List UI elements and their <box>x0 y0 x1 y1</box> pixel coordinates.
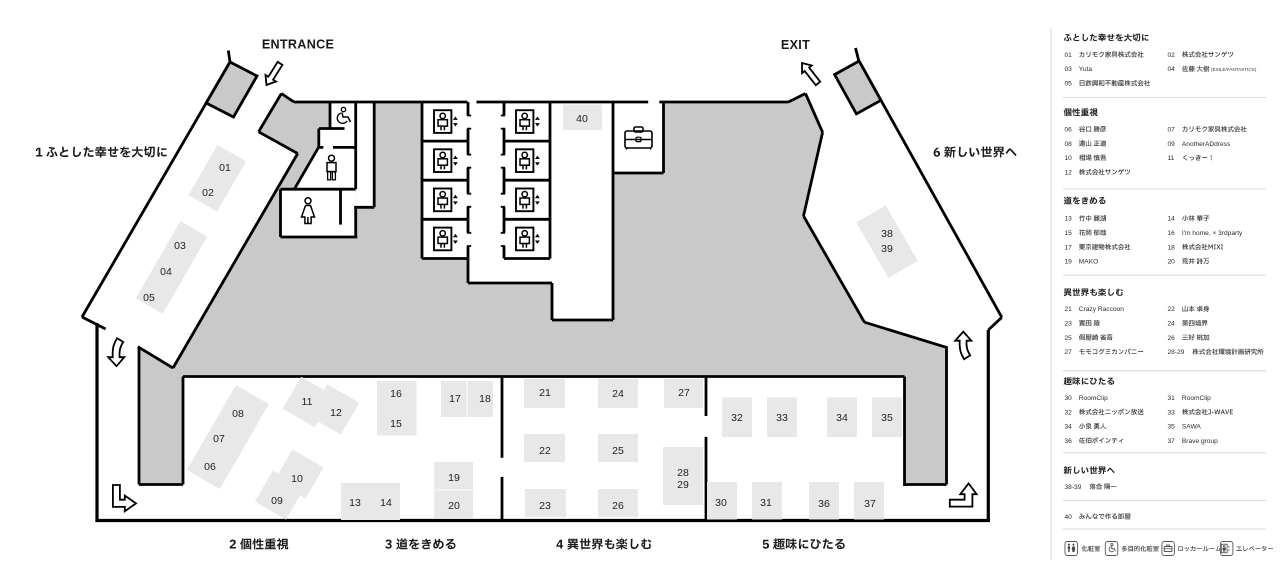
svg-text:(EXILE/FANTASTICS): (EXILE/FANTASTICS) <box>1211 67 1257 72</box>
svg-text:40: 40 <box>576 113 588 125</box>
svg-text:35: 35 <box>881 412 893 424</box>
svg-text:20: 20 <box>1168 259 1176 266</box>
svg-text:37: 37 <box>1168 438 1176 445</box>
svg-text:04: 04 <box>160 266 172 278</box>
svg-text:10: 10 <box>1065 155 1073 162</box>
svg-text:30: 30 <box>715 497 727 509</box>
svg-text:27: 27 <box>1065 349 1073 356</box>
svg-text:Yuta: Yuta <box>1079 66 1093 73</box>
svg-text:EXIT: EXIT <box>781 38 810 52</box>
svg-text:39: 39 <box>881 243 893 255</box>
svg-text:07: 07 <box>213 433 225 445</box>
svg-text:RoomClip: RoomClip <box>1079 395 1108 402</box>
svg-text:32: 32 <box>1065 409 1073 416</box>
svg-text:33: 33 <box>1168 409 1176 416</box>
svg-text:22: 22 <box>1168 306 1176 313</box>
svg-text:22: 22 <box>539 445 551 457</box>
svg-text:37: 37 <box>864 498 876 510</box>
svg-text:26: 26 <box>1168 335 1176 342</box>
svg-text:16: 16 <box>390 388 402 400</box>
svg-text:06: 06 <box>1065 127 1073 134</box>
svg-text:25: 25 <box>612 445 624 457</box>
svg-text:14: 14 <box>380 497 392 509</box>
svg-text:28-29: 28-29 <box>1168 349 1185 356</box>
svg-text:04: 04 <box>1168 66 1176 73</box>
svg-text:36: 36 <box>1065 438 1073 445</box>
svg-text:32: 32 <box>731 412 743 424</box>
svg-text:15: 15 <box>390 418 402 430</box>
svg-text:12: 12 <box>330 407 342 419</box>
svg-text:07: 07 <box>1168 127 1176 134</box>
svg-text:34: 34 <box>1065 424 1073 431</box>
svg-text:13: 13 <box>349 497 361 509</box>
svg-text:01: 01 <box>1065 52 1073 59</box>
svg-text:21: 21 <box>539 387 551 399</box>
svg-text:SAWA: SAWA <box>1182 424 1202 431</box>
svg-text:19: 19 <box>448 472 460 484</box>
svg-text:11: 11 <box>1168 155 1175 162</box>
svg-text:35: 35 <box>1168 424 1176 431</box>
svg-text:23: 23 <box>539 500 551 512</box>
svg-text:05: 05 <box>143 292 155 304</box>
svg-text:AnotherADdress: AnotherADdress <box>1182 141 1231 148</box>
svg-text:28: 28 <box>677 467 689 479</box>
svg-text:Brave group: Brave group <box>1182 438 1218 445</box>
svg-text:24: 24 <box>612 388 624 400</box>
svg-text:17: 17 <box>1065 244 1073 251</box>
svg-text:18: 18 <box>479 393 491 405</box>
svg-text:05: 05 <box>1065 81 1073 88</box>
svg-text:09: 09 <box>271 495 283 507</box>
svg-text:31: 31 <box>1168 395 1176 402</box>
svg-text:27: 27 <box>678 387 690 399</box>
svg-text:03: 03 <box>1065 66 1073 73</box>
svg-text:06: 06 <box>204 461 216 473</box>
svg-text:24: 24 <box>1168 321 1176 328</box>
svg-text:16: 16 <box>1168 230 1176 237</box>
svg-text:19: 19 <box>1065 259 1073 266</box>
svg-text:RoomClip: RoomClip <box>1182 395 1211 402</box>
svg-text:02: 02 <box>1168 52 1176 59</box>
svg-text:34: 34 <box>836 412 848 424</box>
svg-text:10: 10 <box>291 473 303 485</box>
svg-text:09: 09 <box>1168 141 1176 148</box>
svg-text:31: 31 <box>760 497 772 509</box>
svg-text:I'm home. × 3rdparty: I'm home. × 3rdparty <box>1182 230 1243 237</box>
svg-text:26: 26 <box>612 500 624 512</box>
svg-text:Crazy Raccoon: Crazy Raccoon <box>1079 306 1124 313</box>
svg-text:17: 17 <box>449 393 461 405</box>
svg-text:11: 11 <box>302 396 313 408</box>
svg-text:13: 13 <box>1065 216 1073 223</box>
svg-text:40: 40 <box>1065 514 1073 521</box>
svg-text:23: 23 <box>1065 321 1073 328</box>
svg-text:08: 08 <box>1065 141 1073 148</box>
svg-text:38-39: 38-39 <box>1065 484 1082 491</box>
svg-text:29: 29 <box>677 479 689 491</box>
svg-text:15: 15 <box>1065 230 1073 237</box>
svg-text:03: 03 <box>174 240 186 252</box>
svg-text:20: 20 <box>448 500 460 512</box>
svg-text:33: 33 <box>776 412 788 424</box>
svg-text:ENTRANCE: ENTRANCE <box>262 38 334 52</box>
svg-text:14: 14 <box>1168 216 1176 223</box>
svg-text:MAKO: MAKO <box>1079 259 1098 266</box>
svg-text:12: 12 <box>1065 169 1073 176</box>
svg-text:30: 30 <box>1065 395 1073 402</box>
svg-text:25: 25 <box>1065 335 1073 342</box>
svg-text:08: 08 <box>232 408 244 420</box>
svg-text:36: 36 <box>818 498 830 510</box>
svg-text:01: 01 <box>219 162 231 174</box>
svg-text:02: 02 <box>202 187 214 199</box>
svg-text:38: 38 <box>881 228 893 240</box>
svg-text:18: 18 <box>1168 244 1176 251</box>
svg-text:21: 21 <box>1065 306 1073 313</box>
